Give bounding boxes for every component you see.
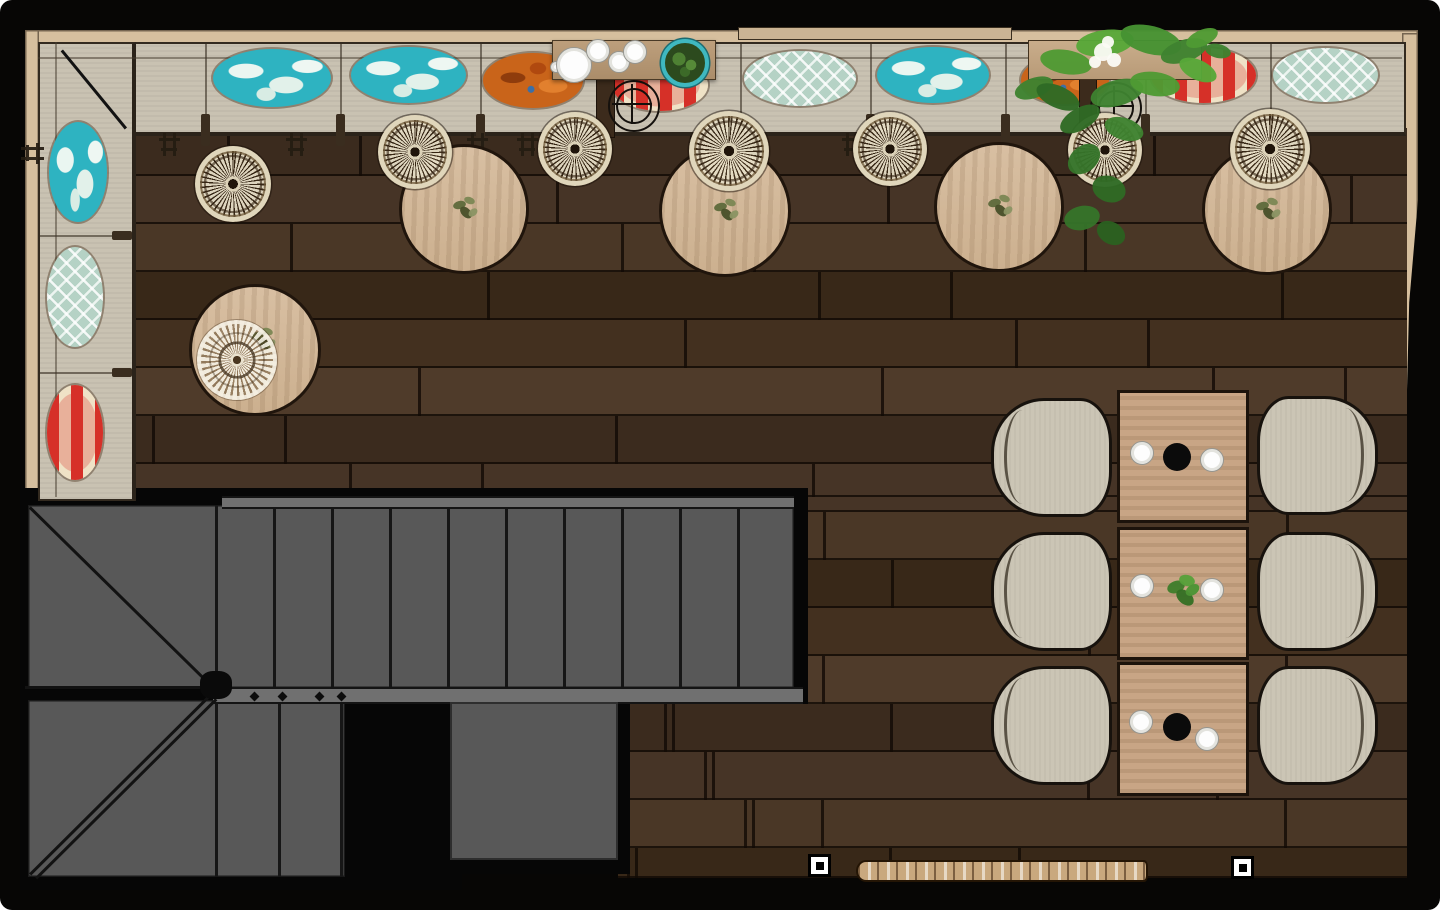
floor-plank-joint [684,320,687,368]
column-symbol-inner [616,88,652,124]
floor-plank-joint [615,416,618,464]
floor-plank-joint [950,272,953,320]
dining-chair [991,532,1112,651]
floor-marker-dot [816,862,824,870]
stair-tread-line [340,700,343,877]
floor-plank-row [130,320,1407,368]
floor-plank-joint [1147,320,1150,368]
dining-chair [1257,532,1378,651]
floor-plank-joint [712,752,715,800]
floor-plank-joint [818,272,821,320]
stair-tread-line [278,700,281,877]
floor-plan-screenshot [0,0,1440,910]
floor-plank-joint [672,704,675,752]
stair-tread-line [621,505,624,688]
floor-plank-joint [890,704,893,752]
floor-plank-joint [823,512,826,560]
dining-chair [991,398,1112,517]
floor-plank-joint [1350,176,1353,224]
pillow-seafoam [47,247,103,347]
floor-plank-joint [290,224,293,272]
floor-plank-joint [556,176,559,224]
floor-plank-row [130,272,1407,320]
stair-tread-line [679,505,682,688]
floor-plank-joint [621,224,624,272]
coffee-cup [586,39,610,63]
rattan-stool [195,146,271,222]
pillow-redstripe [47,385,103,480]
rattan-stool [689,111,769,191]
pillow-seafoam [1273,48,1378,102]
rattan-stool [538,112,612,186]
rattan-stool [378,115,452,189]
dinner-plate [1200,448,1224,472]
floor-plank-joint [891,560,894,608]
stair-rail [222,496,794,509]
stair-tread-line [215,505,218,688]
floor-plank-joint [881,368,884,416]
wood-floor [618,700,795,878]
plant-flower [1102,36,1114,48]
floor-plank-row [618,800,795,848]
floor-plank-joint [487,272,490,320]
bottle-shelf [856,860,1148,882]
chair-back-seam [1004,544,1042,639]
floor-plan-canvas [0,0,1440,910]
stair-tread-line [331,505,334,688]
pillow-turquoise [877,47,989,103]
stair-tread-line [447,505,450,688]
wall-ledge [738,27,1012,40]
rattan-stool [1230,109,1310,189]
stair-newel [200,671,232,699]
floor-marker [808,854,831,877]
bracket-mark [286,131,307,158]
floor-plank-joint [1281,272,1284,320]
floor-plank-row [618,848,795,878]
floor-plank-joint [821,800,824,848]
floor-plank-joint [635,848,638,878]
bracket-mark [517,131,538,158]
floor-plank-joint [284,416,287,464]
bracket-mark [159,131,180,158]
chair-back-seam [1327,678,1365,773]
stair-tread-line [563,505,566,688]
dinner-plate [1130,574,1154,598]
pillow-turquoise [213,49,331,107]
potted-plant-small [661,39,709,87]
black-bowl [1163,443,1191,471]
dinner-plate [1129,710,1153,734]
stair-tread-line [215,700,218,877]
dinner-plate [1200,578,1224,602]
floor-plank-joint [152,416,155,464]
stair-tread-line [389,505,392,688]
bench-leg-post [336,114,345,146]
floor-plank-joint [822,656,825,704]
dinner-plate [1130,441,1154,465]
coffee-cup [623,40,647,64]
plant-flower [1089,56,1101,68]
floor-plank-joint [704,752,707,800]
floor-plank-joint [812,464,815,497]
floor-plank-joint [1084,224,1087,272]
black-bowl [1163,713,1191,741]
dinner-plate [1195,727,1219,751]
floor-plank-row [618,752,795,800]
floor-plank-row [795,800,1407,848]
dining-chair [991,666,1112,785]
floor-plank-joint [752,800,755,848]
floor-plank-joint [1015,320,1018,368]
stair-tread-line [273,505,276,688]
stair-tread-line [505,505,508,688]
floor-plank-joint [744,800,747,848]
floor-plank-joint [664,704,667,752]
stair-flight-upper [28,505,794,688]
floor-marker-dot [1239,864,1247,872]
stair-tread-line [737,505,740,688]
dining-chair [1257,666,1378,785]
floor-plank-joint [418,368,421,416]
plant-flower [1107,53,1121,67]
lace-doily [197,320,277,400]
chair-back-seam [1327,408,1365,503]
floor-plank-row [618,704,795,752]
pillow-turquoise [351,47,466,103]
bench-leg-post [112,368,132,377]
chair-back-seam [1004,678,1042,773]
wall-trim [25,30,39,492]
pillow-seafoam [744,51,856,106]
bench-leg-post [201,114,210,146]
bracket-mark [19,143,46,164]
column-symbol-cross [631,84,634,124]
pillow-turquoise [49,122,107,222]
stair-platform [450,702,618,860]
floor-plank-joint [1284,800,1287,848]
floor-marker [1231,856,1254,879]
chair-back-seam [1327,544,1365,639]
chair-back-seam [1004,410,1042,505]
dining-chair [1257,396,1378,515]
rattan-stool [853,112,927,186]
bench-leg-post [112,231,132,240]
stair-winder-divider [25,686,215,689]
